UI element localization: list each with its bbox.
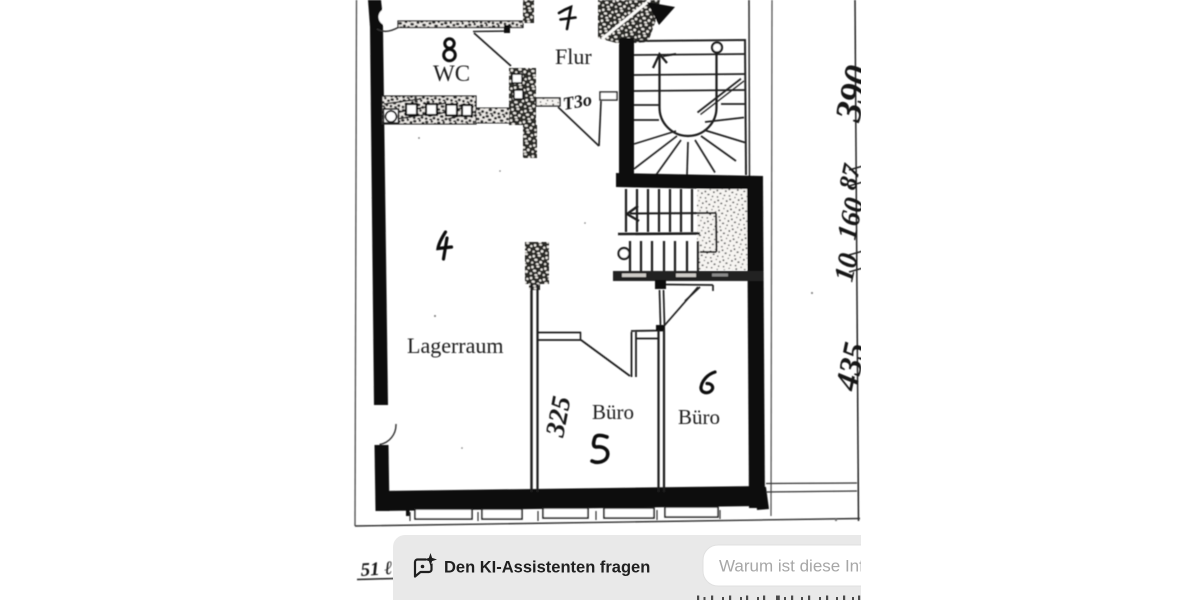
svg-text:WC: WC (433, 61, 470, 86)
svg-text:Lagerraum: Lagerraum (407, 333, 504, 358)
svg-text:Den KI-Assistenten fragen: Den KI-Assistenten fragen (444, 559, 650, 577)
svg-text:Flur: Flur (555, 44, 592, 69)
svg-text:Büro: Büro (592, 400, 634, 424)
svg-text:Büro: Büro (678, 405, 720, 429)
svg-text:Warum ist diese Info: Warum ist diese Info (719, 557, 873, 576)
svg-text:51 ℓ: 51 ℓ (360, 558, 393, 581)
